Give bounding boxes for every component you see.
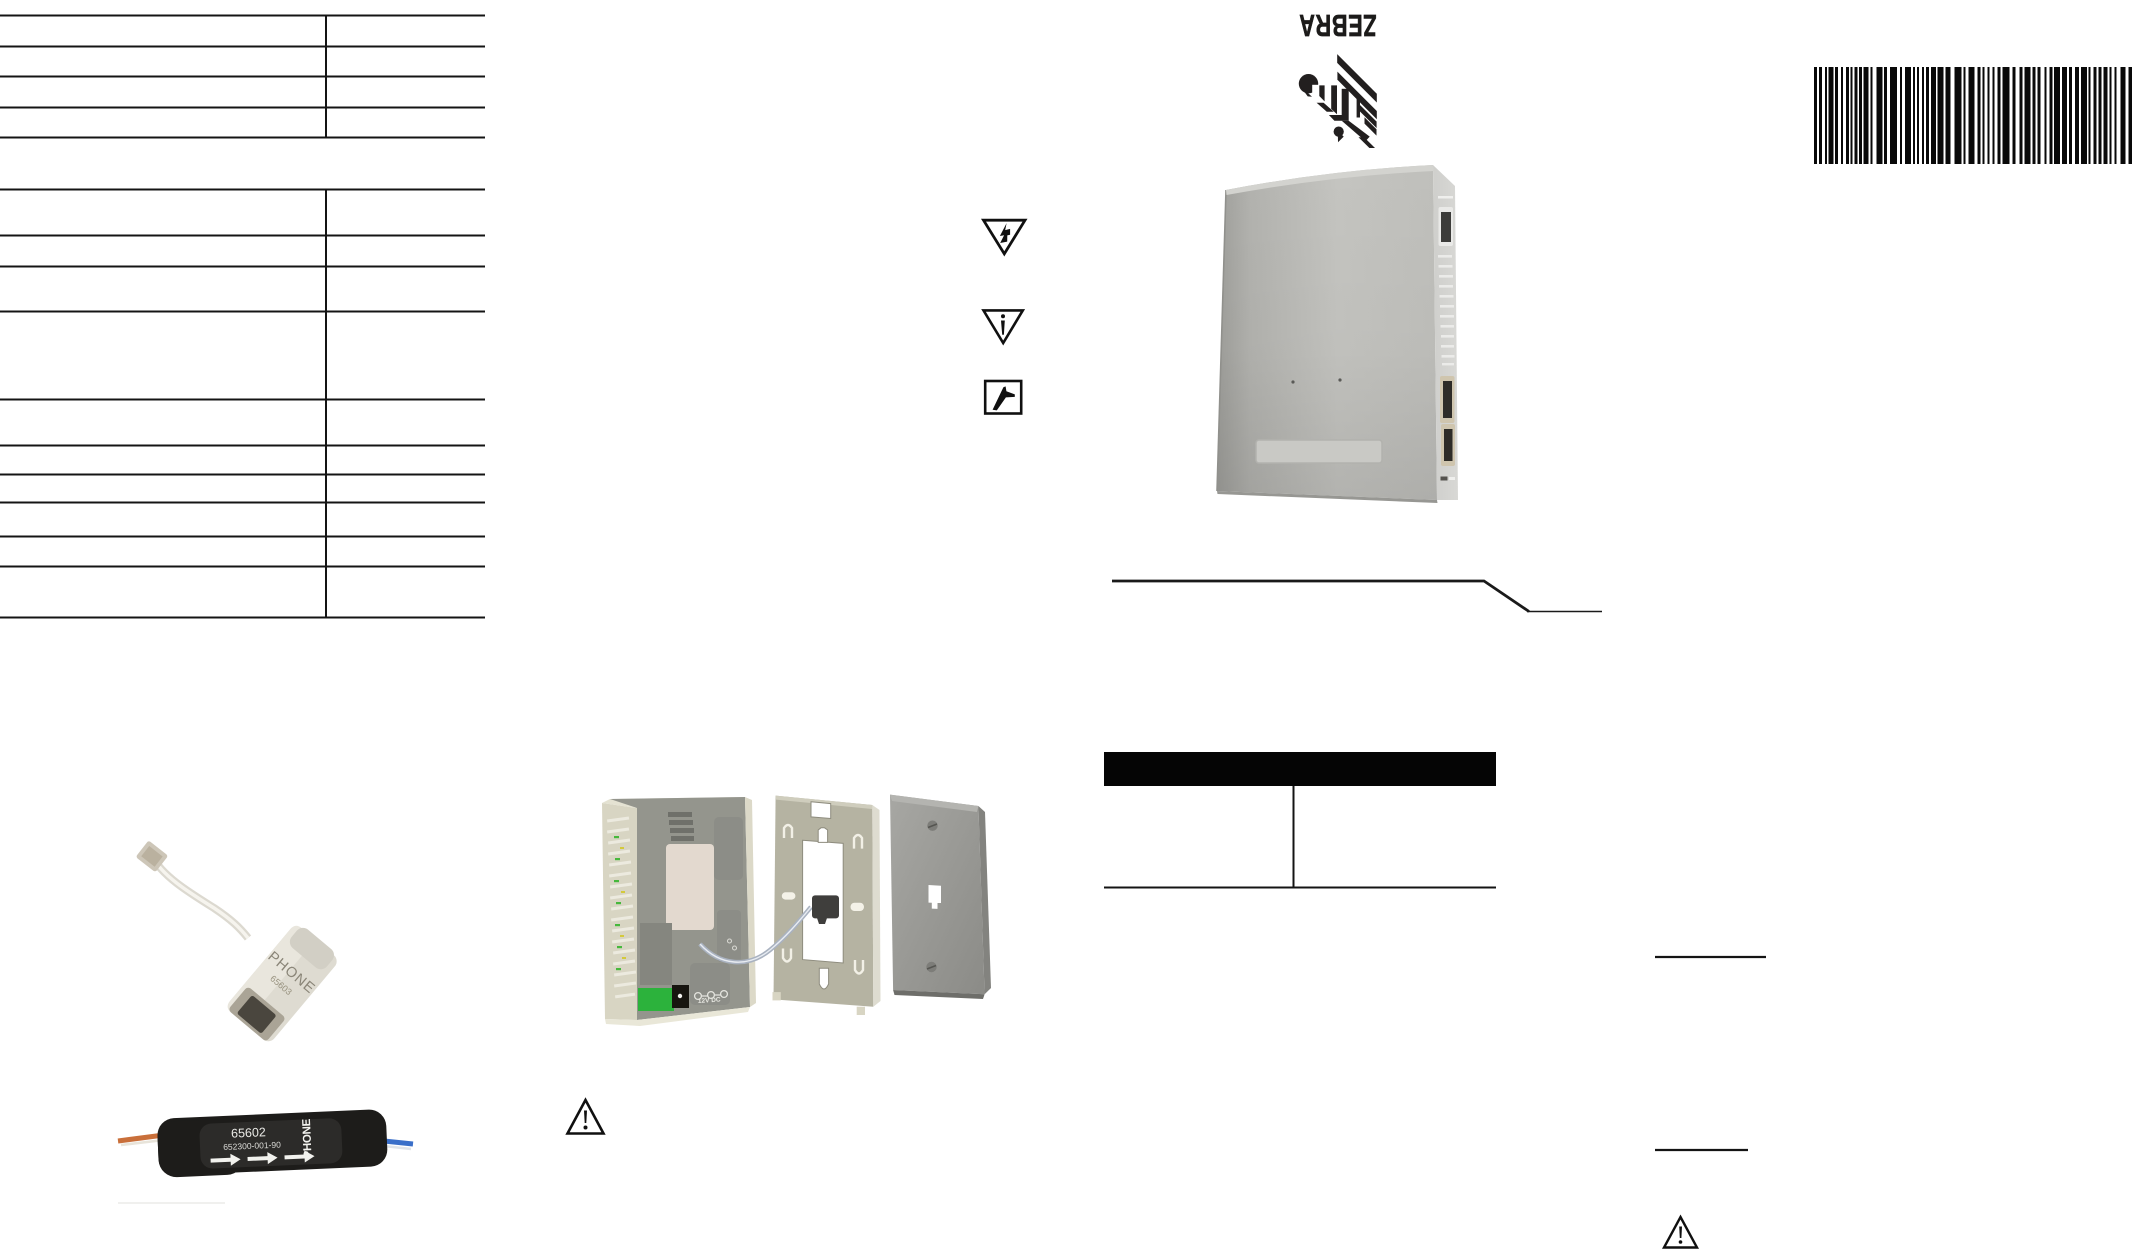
svg-text:65602: 65602 [231, 1125, 266, 1141]
svg-text:ZEBRA: ZEBRA [1299, 8, 1377, 42]
svg-text:PHONE: PHONE [301, 1118, 315, 1159]
